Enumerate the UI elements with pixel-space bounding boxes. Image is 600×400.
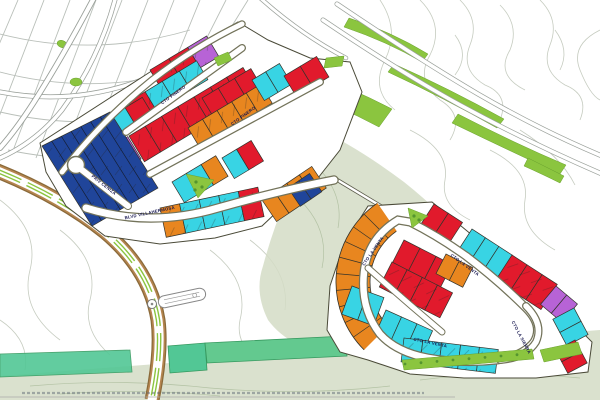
park-blob — [70, 78, 82, 86]
teal-park — [168, 343, 207, 373]
master-plan-svg: CTO PINERO CTO PINERO BLVD VILLAHERMOSA … — [0, 0, 600, 400]
site-plan-map: CTO PINERO CTO PINERO BLVD VILLAHERMOSA … — [0, 0, 600, 400]
park-strip — [324, 56, 344, 68]
